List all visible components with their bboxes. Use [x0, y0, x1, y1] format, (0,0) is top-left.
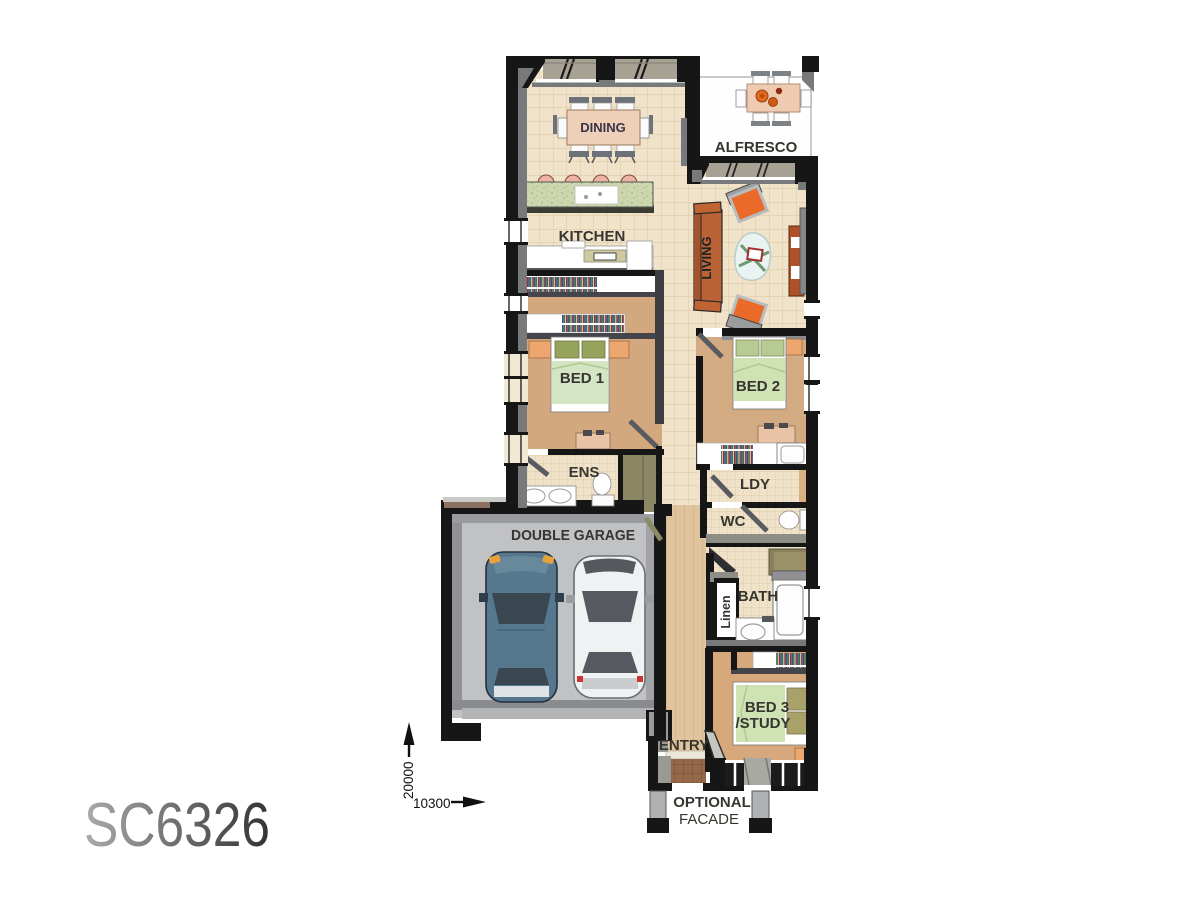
svg-text:KITCHEN: KITCHEN [559, 228, 626, 245]
svg-text:ENS: ENS [569, 464, 600, 481]
svg-text:SC6326: SC6326 [84, 791, 270, 860]
svg-text:FACADE: FACADE [679, 811, 739, 828]
svg-text:BED 3: BED 3 [745, 699, 789, 716]
svg-text:OPTIONAL: OPTIONAL [673, 794, 751, 811]
svg-text:20000: 20000 [401, 761, 416, 799]
svg-text:BED 2: BED 2 [736, 378, 780, 395]
svg-text:ALFRESCO: ALFRESCO [715, 139, 798, 156]
svg-text:/STUDY: /STUDY [735, 715, 790, 732]
svg-text:Linen: Linen [719, 595, 733, 628]
svg-text:DINING: DINING [580, 120, 626, 135]
svg-text:LIVING: LIVING [699, 236, 714, 279]
svg-text:BATH: BATH [738, 588, 779, 605]
svg-text:ENTRY: ENTRY [659, 737, 709, 754]
svg-text:10300: 10300 [413, 796, 451, 811]
svg-text:LDY: LDY [740, 476, 770, 493]
svg-text:DOUBLE GARAGE: DOUBLE GARAGE [511, 527, 635, 544]
svg-text:BED 1: BED 1 [560, 370, 604, 387]
svg-text:WC: WC [721, 513, 746, 530]
